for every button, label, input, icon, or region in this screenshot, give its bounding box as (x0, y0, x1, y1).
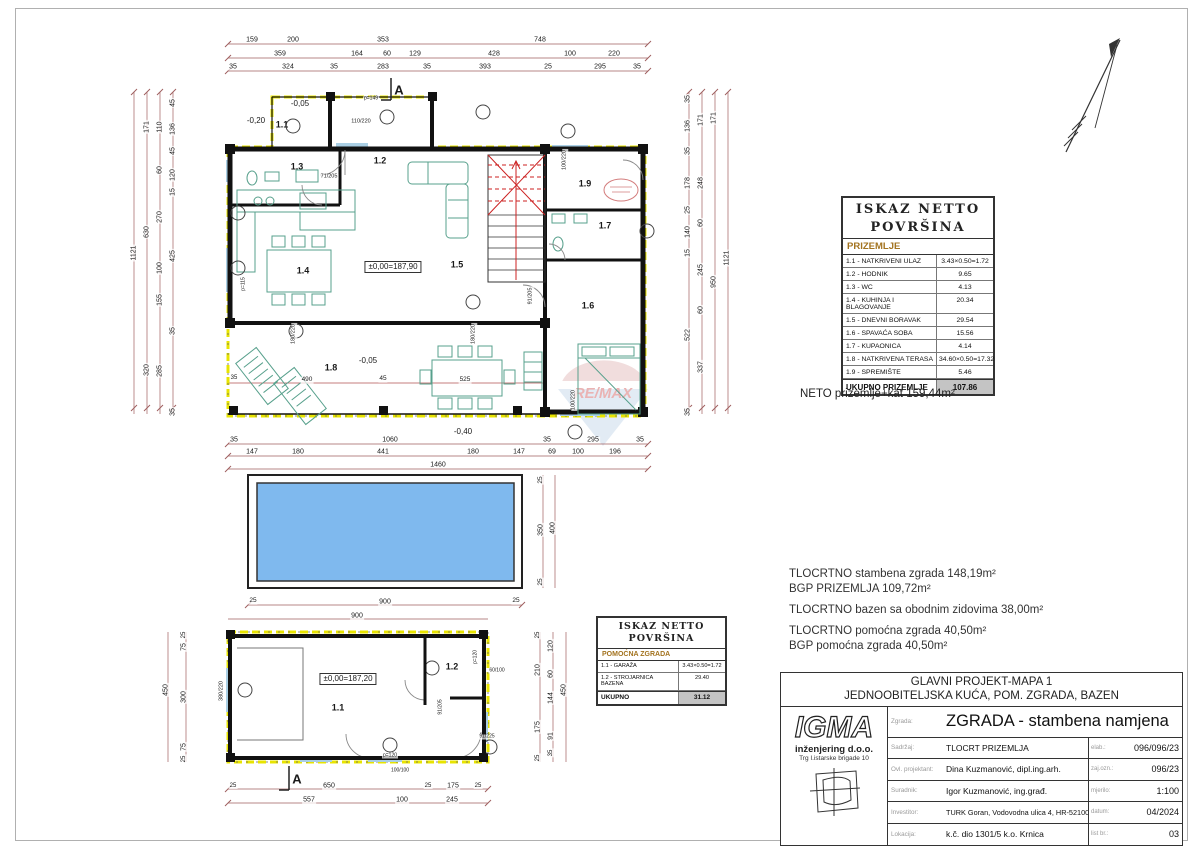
table-row: 1.2 - HODNIK9.65 (843, 268, 993, 281)
field-value: Dina Kuzmanović, dipl.ing.arh. (944, 764, 1088, 774)
table-title-line1: ISKAZ NETTO (598, 621, 725, 633)
meta-label: zaj.ozn.: (1088, 759, 1122, 779)
table-total-label: UKUPNO (598, 692, 678, 704)
meta-value: 1:100 (1122, 786, 1182, 796)
field-label: Suradnik: (888, 787, 944, 794)
title-block-row: Investitor:TURK Goran, Vodovodna ulica 4… (888, 802, 1182, 823)
table-row-label: 1.8 - NATKRIVENA TERASA (843, 353, 936, 365)
title-block-row: Zgrada:ZGRADA - stambena namjena (888, 707, 1182, 738)
company-logo-wordmark: IGMA (784, 709, 884, 743)
door-swings (302, 150, 643, 758)
field-value: Igor Kuzmanović, ing.građ. (944, 786, 1088, 796)
title-block-row: Lokacija:k.č. dio 1301/5 k.o. Krnicalist… (888, 824, 1182, 845)
title-block-row: Ovl. projektant:Dina Kuzmanović, dipl.in… (888, 759, 1182, 780)
watermark: RE/MAX (556, 360, 650, 446)
windows (228, 145, 643, 760)
neto-note: NETO prizemlje+kat 159,44m² (800, 388, 1030, 400)
meta-label: datum: (1088, 802, 1122, 822)
table-total-value: 31.12 (678, 692, 725, 704)
table-title-line1: ISKAZ NETTO (843, 201, 993, 219)
project-title-line2: JEDNOOBITELJSKA KUĆA, POM. ZGRADA, BAZEN (781, 689, 1182, 703)
project-title-line1: GLAVNI PROJEKT-MAPA 1 (781, 675, 1182, 689)
table-row-value: 3.43×0.50=1.72 (678, 661, 725, 672)
table-row: 1.1 - GARAŽA3.43×0.50=1.72 (598, 661, 725, 673)
table-subtitle: PRIZEMLJE (843, 239, 993, 255)
table-row-label: 1.4 - KUHINJA I BLAGOVANJE (843, 294, 936, 313)
stamp-icon (604, 179, 638, 201)
field-label: Investitor: (888, 809, 944, 816)
field-value: TLOCRT PRIZEMLJA (944, 743, 1088, 753)
table-row-label: 1.2 - STROJARNICA BAZENA (598, 673, 678, 690)
pool (248, 475, 522, 588)
meta-value: 096/096/23 (1122, 743, 1182, 753)
table-row-label: 1.1 - GARAŽA (598, 661, 678, 672)
table-row: 1.9 - SPREMIŠTE5.46 (843, 366, 993, 379)
meta-label: elab.: (1088, 738, 1122, 758)
table-row-label: 1.7 - KUPAONICA (843, 340, 936, 352)
meta-label: list br.: (1088, 824, 1122, 845)
table-row: 1.4 - KUHINJA I BLAGOVANJE20.34 (843, 294, 993, 314)
table-row-label: 1.3 - WC (843, 281, 936, 293)
logo-house-icon (806, 766, 862, 818)
title-block-row: Sadržaj:TLOCRT PRIZEMLJAelab.:096/096/23 (888, 738, 1182, 759)
table-title-line2: POVRŠINA (843, 219, 993, 237)
table-row: 1.3 - WC4.13 (843, 281, 993, 294)
table-row-value: 15.56 (936, 327, 993, 339)
field-label: Sadržaj: (888, 744, 944, 751)
drawing-sheet: RE/MAX (0, 0, 1200, 848)
area-note: BGP pomoćna zgrada 40,50m² (789, 640, 1089, 652)
project-title: GLAVNI PROJEKT-MAPA 1 JEDNOOBITELJSKA KU… (781, 673, 1182, 707)
company-logo: IGMA inženjering d.o.o. Trg I.istarske b… (781, 707, 888, 845)
netto-table-prizemlje: ISKAZ NETTO POVRŠINA PRIZEMLJE 1.1 - NAT… (841, 196, 995, 396)
field-value: ZGRADA - stambena namjena (944, 712, 1182, 731)
table-row-label: 1.2 - HODNIK (843, 268, 936, 280)
table-row-label: 1.9 - SPREMIŠTE (843, 366, 936, 378)
walls-secondary-building (230, 634, 484, 760)
table-title: ISKAZ NETTO POVRŠINA (843, 198, 993, 239)
table-row-value: 20.34 (936, 294, 993, 313)
table-rows: 1.1 - GARAŽA3.43×0.50=1.721.2 - STROJARN… (598, 661, 725, 691)
table-title: ISKAZ NETTO POVRŠINA (598, 618, 725, 649)
table-row-value: 4.13 (936, 281, 993, 293)
table-row-value: 4.14 (936, 340, 993, 352)
table-subtitle: POMOĆNA ZGRADA (598, 649, 725, 661)
table-row-value: 29.40 (678, 673, 725, 690)
field-value: TURK Goran, Vodovodna ulica 4, HR-52100 … (944, 808, 1088, 817)
title-block-rows: Zgrada:ZGRADA - stambena namjenaSadržaj:… (888, 707, 1182, 845)
wall-posts (225, 92, 648, 762)
field-label: Zgrada: (888, 718, 944, 725)
area-notes: TLOCRTNO stambena zgrada 148,19m² BGP PR… (789, 568, 1089, 655)
netto-table-pomocna: ISKAZ NETTO POVRŠINA POMOĆNA ZGRADA 1.1 … (596, 616, 727, 706)
field-value: k.č. dio 1301/5 k.o. Krnica (944, 829, 1088, 839)
table-total-row: UKUPNO 31.12 (598, 691, 725, 704)
meta-value: 03 (1122, 829, 1182, 839)
section-markers (279, 78, 391, 790)
title-block-row: Suradnik:Igor Kuzmanović, ing.građ.mjeri… (888, 781, 1182, 802)
meta-label: mjerilo: (1088, 781, 1122, 801)
area-note: TLOCRTNO stambena zgrada 148,19m² (789, 568, 1089, 580)
area-note: BGP PRIZEMLJA 109,72m² (789, 583, 1089, 595)
staircase (488, 155, 545, 282)
svg-text:IGMA: IGMA (795, 711, 873, 743)
table-row-label: 1.1 - NATKRIVENI ULAZ (843, 255, 936, 267)
table-row-value: 29.54 (936, 314, 993, 326)
table-row-value: 3.43×0.50=1.72 (936, 255, 993, 267)
table-row: 1.5 - DNEVNI BORAVAK29.54 (843, 314, 993, 327)
company-name: inženjering d.o.o. (781, 744, 887, 755)
area-note: TLOCRTNO pomoćna zgrada 40,50m² (789, 625, 1089, 637)
table-row: 1.8 - NATKRIVENA TERASA34.60×0.50=17.32 (843, 353, 993, 366)
table-row-label: 1.6 - SPAVAĆA SOBA (843, 327, 936, 339)
table-row: 1.2 - STROJARNICA BAZENA29.40 (598, 673, 725, 691)
table-row-value: 9.65 (936, 268, 993, 280)
watermark-text: RE/MAX (574, 385, 633, 402)
table-row: 1.6 - SPAVAĆA SOBA15.56 (843, 327, 993, 340)
field-label: Lokacija: (888, 831, 944, 838)
table-row: 1.7 - KUPAONICA4.14 (843, 340, 993, 353)
table-row-label: 1.5 - DNEVNI BORAVAK (843, 314, 936, 326)
company-address: Trg I.istarske brigade 10 (781, 755, 887, 762)
table-title-line2: POVRŠINA (598, 633, 725, 645)
title-block: GLAVNI PROJEKT-MAPA 1 JEDNOOBITELJSKA KU… (780, 672, 1183, 846)
area-note: TLOCRTNO bazen sa obodnim zidovima 38,00… (789, 604, 1089, 616)
table-row-value: 5.46 (936, 366, 993, 378)
north-arrow-icon (1064, 38, 1120, 152)
table-row-value: 34.60×0.50=17.32 (936, 353, 993, 365)
field-label: Ovl. projektant: (888, 766, 944, 773)
meta-value: 04/2024 (1122, 807, 1182, 817)
meta-value: 096/23 (1122, 764, 1182, 774)
table-rows: 1.1 - NATKRIVENI ULAZ3.43×0.50=1.721.2 -… (843, 255, 993, 379)
table-row: 1.1 - NATKRIVENI ULAZ3.43×0.50=1.72 (843, 255, 993, 268)
